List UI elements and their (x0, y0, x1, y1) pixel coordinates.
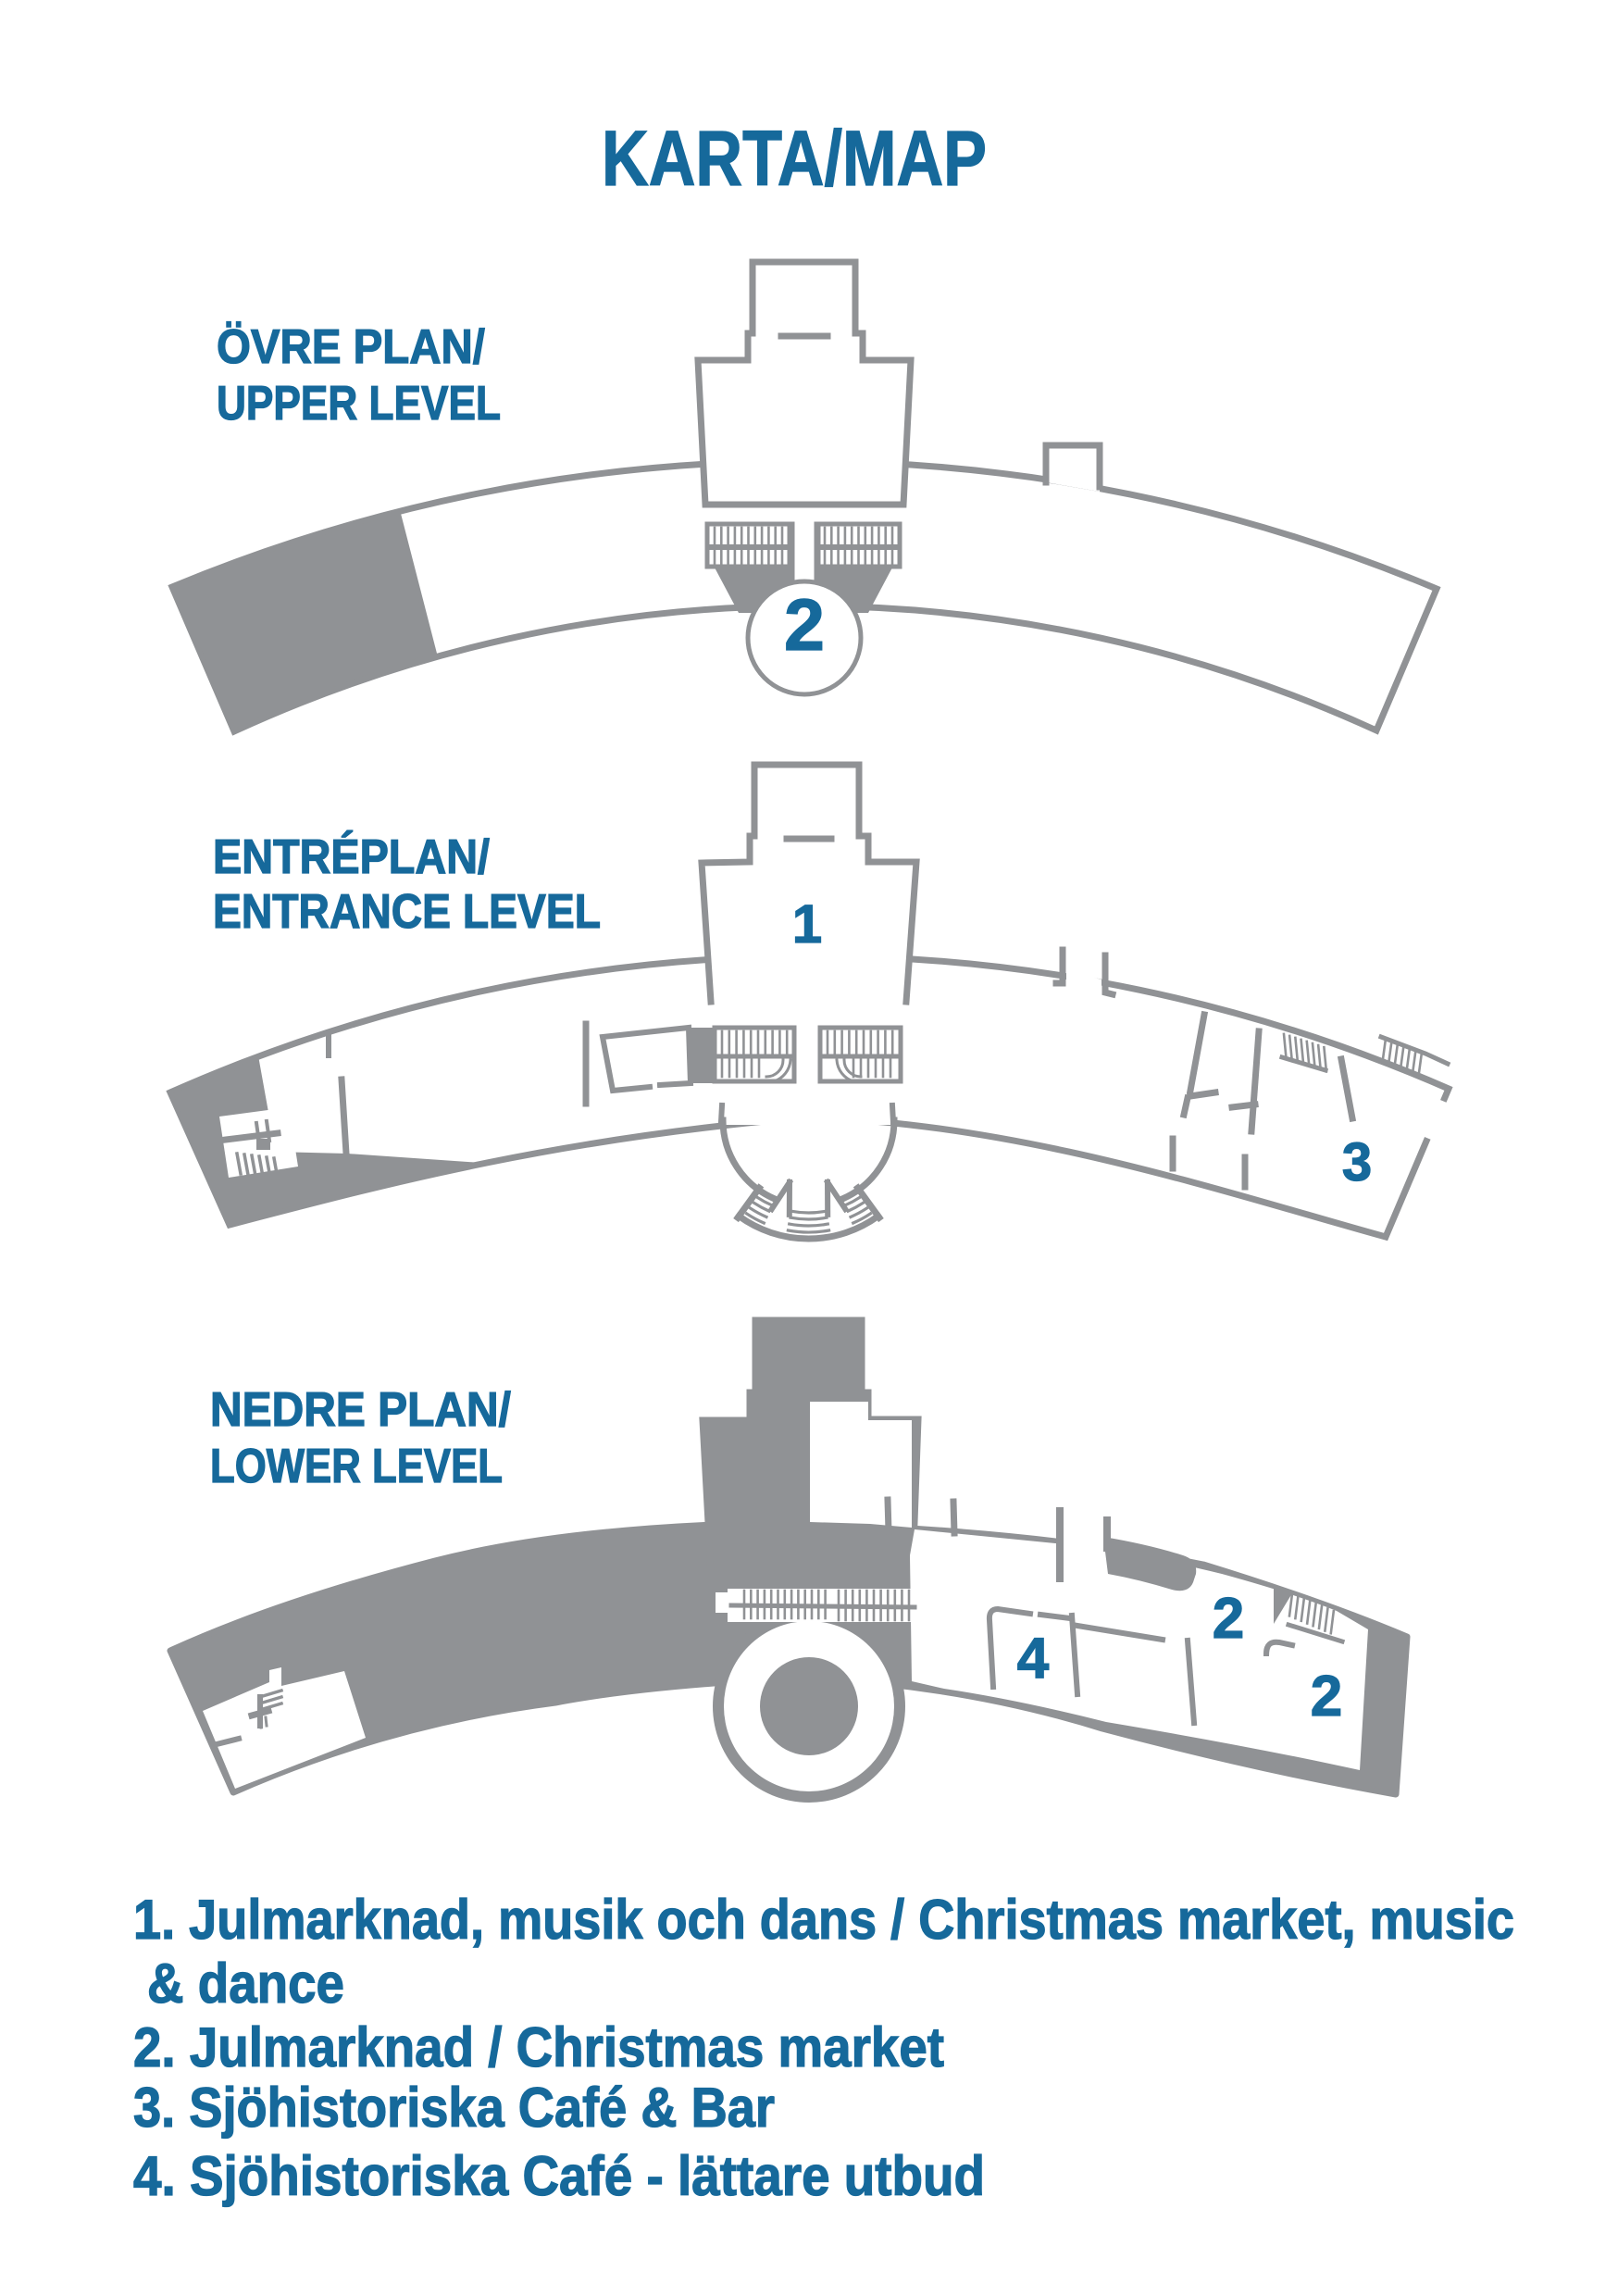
svg-text:NEDRE PLAN/: NEDRE PLAN/ (210, 1383, 511, 1437)
svg-text:3: 3 (1342, 1132, 1372, 1192)
svg-text:2. Julmarknad / Christmas mark: 2. Julmarknad / Christmas market (133, 2016, 944, 2078)
svg-text:2: 2 (784, 583, 825, 666)
svg-text:ENTRÉPLAN/: ENTRÉPLAN/ (213, 830, 490, 884)
svg-text:KARTA/MAP: KARTA/MAP (602, 115, 987, 202)
svg-text:UPPER LEVEL: UPPER LEVEL (217, 377, 501, 430)
svg-text:2: 2 (1213, 1587, 1244, 1651)
svg-text:2: 2 (1311, 1665, 1342, 1728)
svg-text:& dance: & dance (147, 1953, 344, 2015)
svg-text:4. Sjöhistoriska Café - lättar: 4. Sjöhistoriska Café - lättare utbud (133, 2145, 985, 2207)
svg-text:LOWER LEVEL: LOWER LEVEL (210, 1440, 503, 1493)
svg-text:4: 4 (1017, 1627, 1050, 1691)
svg-text:1: 1 (792, 894, 822, 955)
svg-text:1. Julmarknad, musik och dans: 1. Julmarknad, musik och dans / Christma… (133, 1889, 1514, 1951)
svg-text:ENTRANCE LEVEL: ENTRANCE LEVEL (213, 885, 601, 939)
svg-text:ÖVRE PLAN/: ÖVRE PLAN/ (217, 320, 485, 374)
svg-text:3. Sjöhistoriska Café & Bar: 3. Sjöhistoriska Café & Bar (133, 2077, 775, 2139)
